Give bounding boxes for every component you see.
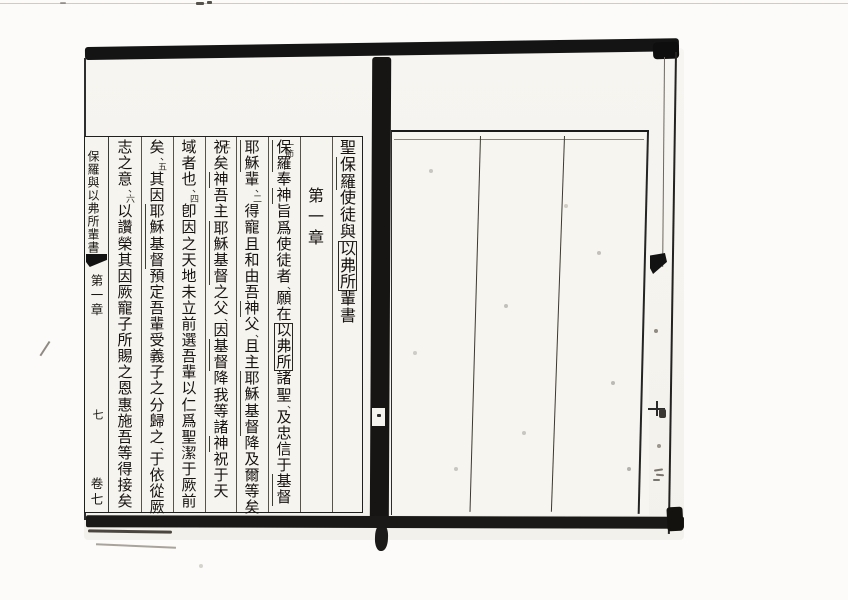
char: 基: [268, 475, 300, 491]
verse-number: 四: [190, 195, 199, 204]
char: 且: [236, 340, 268, 356]
char: 之: [141, 382, 173, 398]
char: 穌: [236, 388, 268, 404]
column-rule: [470, 136, 481, 512]
char: 立: [173, 302, 205, 318]
bottom-faint-line: [96, 543, 176, 548]
char: 選: [173, 334, 205, 350]
char: 以: [173, 382, 205, 398]
char: 者: [173, 157, 205, 173]
char: 書: [332, 309, 364, 326]
scan-speck: [196, 2, 204, 5]
char: 主: [205, 205, 237, 221]
char: 使: [332, 191, 364, 208]
proper-name-mark: [209, 172, 210, 188]
text-column-heading: 聖保羅使徒與以弗所輩書: [332, 137, 364, 514]
char: 矣: [205, 157, 237, 173]
text-column-verse-2: 耶穌輩、二得寵且和由吾神父、且主耶穌基督降及爾等矣、: [236, 137, 268, 514]
char: 耶: [236, 141, 268, 157]
fold-band-notch-mark: [377, 414, 381, 417]
char: 爾: [236, 469, 268, 485]
char: 爲: [268, 222, 300, 238]
char: 天: [205, 485, 237, 501]
char: 基: [205, 254, 237, 270]
char: 卽: [173, 205, 205, 221]
char: 督: [141, 254, 173, 270]
edge-scribble: [653, 479, 660, 481]
char: 預: [141, 270, 173, 286]
char: 厥: [173, 479, 205, 495]
char: 義: [141, 350, 173, 366]
char: 施: [109, 415, 141, 431]
char: 保: [332, 158, 364, 175]
proper-name-mark: [145, 204, 146, 268]
left-page-text-area: 聖保羅使徒與以弗所輩書第一章一節保羅奉神旨爲使徒者、願在以弗所諸聖、及忠信于基督…: [85, 137, 362, 512]
char: 因: [205, 324, 237, 340]
char: 寵: [109, 302, 141, 318]
fold-band-notch: [372, 408, 385, 426]
char: 羅: [268, 157, 300, 173]
text-column-verse-1: 一節保羅奉神旨爲使徒者、願在以弗所諸聖、及忠信于基督: [268, 137, 300, 514]
text-column-verse-4: 域者也、四卽因之天地未立前選吾輩以仁爲聖潔于厥前: [173, 137, 205, 514]
char: 榮: [109, 238, 141, 254]
char: 由: [236, 270, 268, 286]
left-page: 保羅與以弗所輩書 第一章 七 卷七 聖保羅使徒與以弗所輩書第一章一節保羅奉神旨爲…: [84, 136, 363, 513]
char: 神: [205, 173, 237, 189]
margin-scratch: [39, 341, 50, 356]
char: 從: [141, 485, 173, 501]
char: 潔: [173, 447, 205, 463]
char: 諸: [205, 421, 237, 437]
char: 寵: [236, 221, 268, 237]
text-column-verse-6: 志之意、六以讚榮其因厥寵子所賜之恩惠施吾等得接矣: [109, 137, 141, 514]
text-column-verse-3: 三祝矣神吾主耶穌基督之父、因基督降我等諸神祝于天: [205, 137, 237, 514]
char: 信: [268, 443, 300, 459]
char: 聖: [173, 431, 205, 447]
char: 諸: [268, 372, 300, 388]
char: 和: [236, 254, 268, 270]
char: 羅: [332, 175, 364, 192]
char: 志: [109, 141, 141, 157]
char: 等: [109, 447, 141, 463]
char: 使: [268, 238, 300, 254]
char: 于: [205, 469, 237, 485]
char: 徒: [268, 254, 300, 270]
char: 輩: [141, 318, 173, 334]
char: 聖: [332, 141, 364, 158]
edge-ink-blob: [659, 409, 666, 418]
char: 督: [236, 421, 268, 437]
char: 依: [141, 469, 173, 485]
char: 降: [236, 437, 268, 453]
char: 輩: [332, 292, 364, 309]
char: 分: [141, 399, 173, 415]
char: 讚: [109, 221, 141, 237]
char: 祝: [205, 141, 237, 157]
proper-name-mark: [209, 339, 210, 371]
char: 章: [300, 231, 332, 252]
char: 徒: [332, 208, 364, 225]
char: 忠: [268, 427, 300, 443]
char: 且: [236, 238, 268, 254]
char: 督: [268, 491, 300, 507]
char: 穌: [205, 238, 237, 254]
char: 及: [236, 453, 268, 469]
char: 于: [268, 459, 300, 475]
char: 之: [205, 286, 237, 302]
char: 旨: [268, 205, 300, 221]
char: 所: [109, 334, 141, 350]
char: 其: [141, 173, 173, 189]
proper-name-mark: [240, 301, 241, 317]
char: 等: [236, 485, 268, 501]
char: 及: [268, 411, 300, 427]
paper-specks: [0, 0, 2, 2]
right-page-right-border: [638, 132, 649, 514]
center-fold-band: [370, 57, 391, 527]
char: 吾: [236, 286, 268, 302]
proper-name-mark: [272, 188, 273, 204]
char: 神: [268, 189, 300, 205]
char: 降: [205, 372, 237, 388]
char: 主: [236, 356, 268, 372]
char: 賜: [109, 350, 141, 366]
edge-bottom-blob: [666, 507, 683, 532]
char: 矣: [109, 495, 141, 511]
book-bottom-edge-band: [86, 515, 684, 529]
char: 保: [268, 141, 300, 157]
char: 以: [109, 205, 141, 221]
char: 穌: [141, 221, 173, 237]
char: 接: [109, 479, 141, 495]
verse-number: 六: [126, 195, 135, 204]
right-page-inner-top-rule: [394, 139, 644, 140]
char: 耶: [141, 205, 173, 221]
char: 吾: [141, 302, 173, 318]
text-column-verse-5: 矣、五其因耶穌基督預定吾輩受義子之分歸之、于依從厥: [141, 137, 173, 514]
char: 第: [300, 189, 332, 210]
char: 前: [173, 318, 205, 334]
char: 與: [332, 225, 364, 242]
column-rule: [551, 136, 565, 512]
proper-name-mark: [272, 474, 273, 506]
proper-name-mark: [209, 436, 210, 452]
verse-number: 二: [253, 195, 262, 204]
place-name-box: [274, 323, 293, 371]
char: 基: [236, 405, 268, 421]
char: 奉: [268, 173, 300, 189]
char: 得: [109, 463, 141, 479]
char: 歸: [141, 415, 173, 431]
char: 之: [173, 238, 205, 254]
char: 我: [205, 389, 237, 405]
char: 恩: [109, 382, 141, 398]
char: 爲: [173, 415, 205, 431]
scanned-book-spread: 保羅與以弗所輩書 第一章 七 卷七 聖保羅使徒與以弗所輩書第一章一節保羅奉神旨爲…: [0, 0, 848, 600]
proper-name-mark: [272, 140, 273, 172]
char: 一: [300, 210, 332, 231]
char: 耶: [205, 222, 237, 238]
char: 輩: [173, 366, 205, 382]
char: 受: [141, 334, 173, 350]
char: 吾: [205, 189, 237, 205]
char: 願: [268, 292, 300, 308]
verse-number: 五: [158, 163, 167, 172]
char: 因: [109, 270, 141, 286]
char: 仁: [173, 399, 205, 415]
char: 在: [268, 308, 300, 324]
char: 基: [205, 340, 237, 356]
place-name-box: [338, 241, 357, 291]
text-column-chapter-heading: 第一章: [300, 137, 332, 514]
char: 因: [173, 221, 205, 237]
char: 得: [236, 205, 268, 221]
char: 穌: [236, 157, 268, 173]
proper-name-mark: [240, 371, 241, 435]
char: 子: [141, 366, 173, 382]
char: 基: [141, 238, 173, 254]
char: 神: [236, 302, 268, 318]
char: 其: [109, 254, 141, 270]
proper-name-mark: [336, 157, 337, 191]
right-page: [391, 130, 649, 515]
char: 前: [173, 495, 205, 511]
scan-speck: [60, 2, 66, 4]
char: 因: [141, 189, 173, 205]
char: 天: [173, 254, 205, 270]
char: 之: [109, 366, 141, 382]
proper-name-mark: [209, 221, 210, 285]
char: 未: [173, 286, 205, 302]
proper-name-mark: [240, 140, 241, 172]
char: 督: [205, 356, 237, 372]
char: 于: [173, 463, 205, 479]
char: 之: [109, 157, 141, 173]
char: 于: [141, 453, 173, 469]
char: 子: [109, 318, 141, 334]
char: 等: [205, 405, 237, 421]
char: 厥: [109, 286, 141, 302]
char: 地: [173, 270, 205, 286]
char: 祝: [205, 453, 237, 469]
scan-speck: [207, 1, 212, 4]
char: 定: [141, 286, 173, 302]
char: 吾: [109, 431, 141, 447]
char: 惠: [109, 399, 141, 415]
char: 神: [205, 437, 237, 453]
scan-top-edge-line: [0, 3, 848, 4]
char: 督: [205, 270, 237, 286]
char: 耶: [236, 372, 268, 388]
char: 吾: [173, 350, 205, 366]
char: 域: [173, 141, 205, 157]
